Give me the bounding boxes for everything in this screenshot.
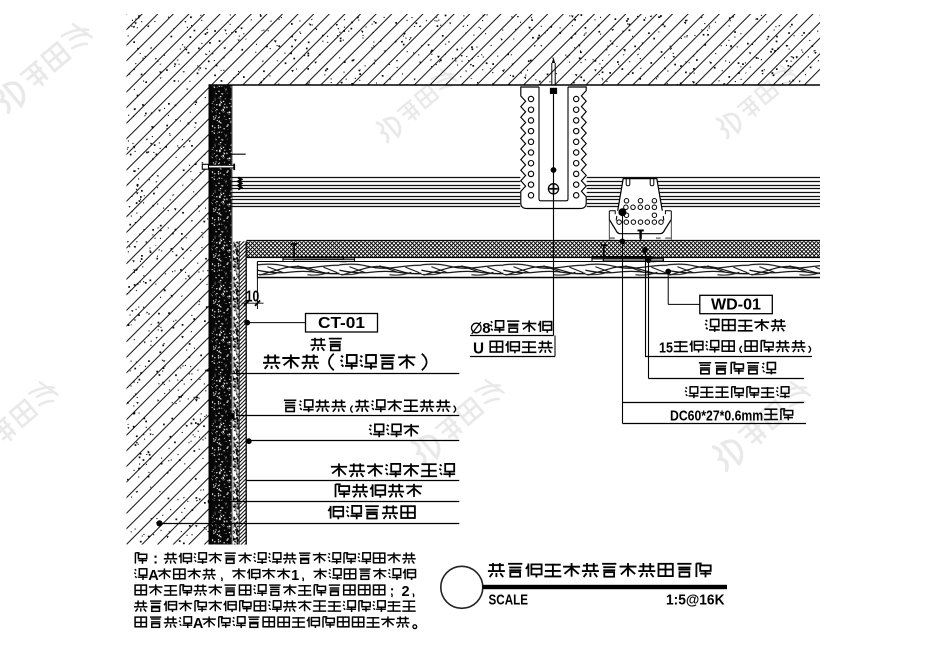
svg-text:WD-01: WD-01 — [711, 297, 761, 314]
svg-text:15: 15 — [659, 341, 673, 357]
svg-text:10: 10 — [246, 288, 259, 305]
svg-text:U: U — [473, 340, 484, 357]
svg-text:A: A — [148, 568, 159, 584]
svg-text:A: A — [193, 616, 204, 632]
svg-text:SCALE: SCALE — [489, 591, 529, 608]
svg-text:1:5@16K: 1:5@16K — [666, 591, 725, 608]
svg-text:CT-01: CT-01 — [318, 315, 365, 332]
svg-text:DC60*27*0.6mm: DC60*27*0.6mm — [670, 409, 763, 425]
svg-text:1: 1 — [291, 568, 299, 584]
svg-text:2: 2 — [402, 584, 410, 600]
svg-text:8: 8 — [482, 320, 490, 337]
